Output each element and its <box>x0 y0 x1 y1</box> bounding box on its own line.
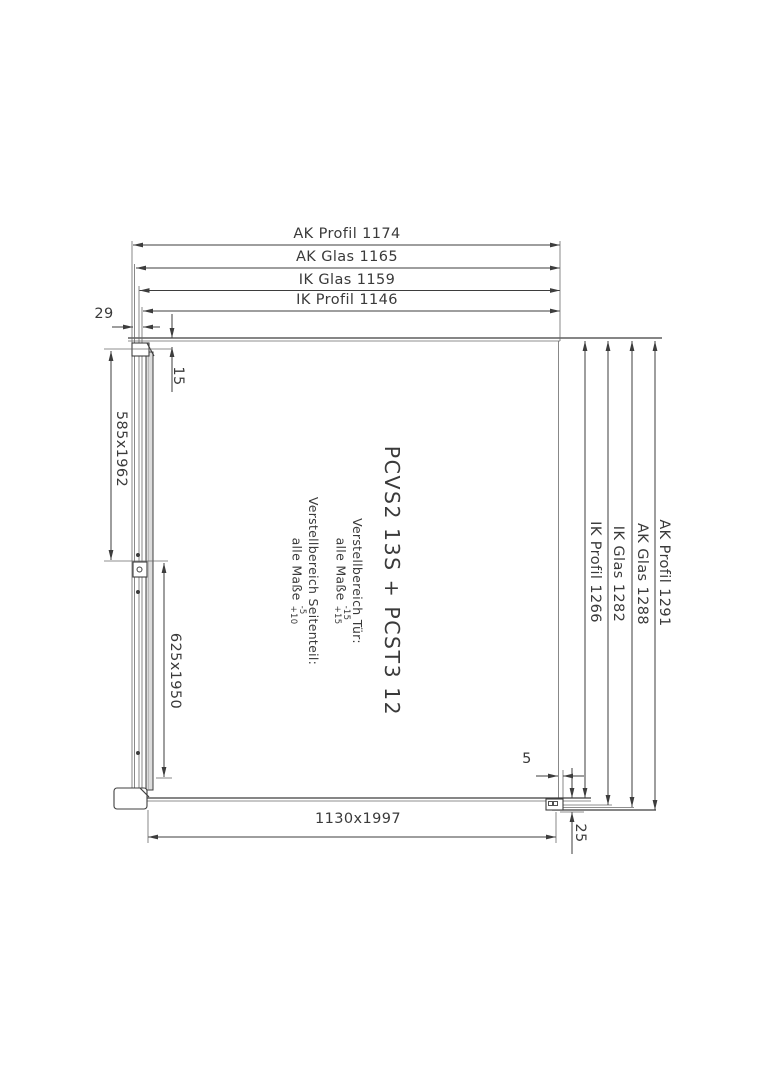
dim-label-15: 15 <box>170 366 186 385</box>
dim-label-29: 29 <box>94 306 113 322</box>
dim-label-ik-glas-height: IK Glas 1282 <box>610 526 626 622</box>
side-adjust-title: Verstellbereich Seitenteil: <box>307 431 322 731</box>
dim-label-ak-glas-width: AK Glas 1165 <box>296 249 398 265</box>
door-wall-profile <box>114 241 154 809</box>
top-corner-bracket <box>132 343 149 356</box>
dim-label-5: 5 <box>522 751 532 767</box>
dim-label-ak-profil-height: AK Profil 1291 <box>656 519 672 626</box>
door-tolerance-stack: -15+15 <box>332 606 351 625</box>
side-adjust-values: alle Maße-5+10 <box>287 431 306 731</box>
wall-fitting <box>546 799 563 810</box>
dim-label-ik-profil-height: IK Profil 1266 <box>587 521 603 623</box>
door-adjust-values: alle Maße-15+15 <box>331 431 350 731</box>
dim-label-ak-profil-width: AK Profil 1174 <box>293 226 400 242</box>
dim-label-ak-glas-height: AK Glas 1288 <box>634 523 650 625</box>
product-model-label: PCVS2 13S + PCST3 12 <box>380 431 404 731</box>
dim-label-ik-glas-width: IK Glas 1159 <box>299 272 395 288</box>
hinge-clamp <box>133 553 147 755</box>
dim-label-625x1950: 625x1950 <box>167 633 183 709</box>
foot-bracket <box>114 788 149 809</box>
side-tolerance-stack: -5+10 <box>288 606 307 625</box>
dim-label-585x1962: 585x1962 <box>113 411 129 487</box>
center-annotation-block: PCVS2 13S + PCST3 12 Verstellbereich Tür… <box>286 431 404 731</box>
dim-label-1130x1997: 1130x1997 <box>315 811 401 827</box>
dim-label-ik-profil-width: IK Profil 1146 <box>296 292 398 308</box>
door-adjust-title: Verstellbereich Tür: <box>350 431 365 731</box>
cad-drawing-page: AK Profil 1174 AK Glas 1165 IK Glas 1159… <box>0 0 763 1080</box>
dim-label-25: 25 <box>572 823 588 842</box>
